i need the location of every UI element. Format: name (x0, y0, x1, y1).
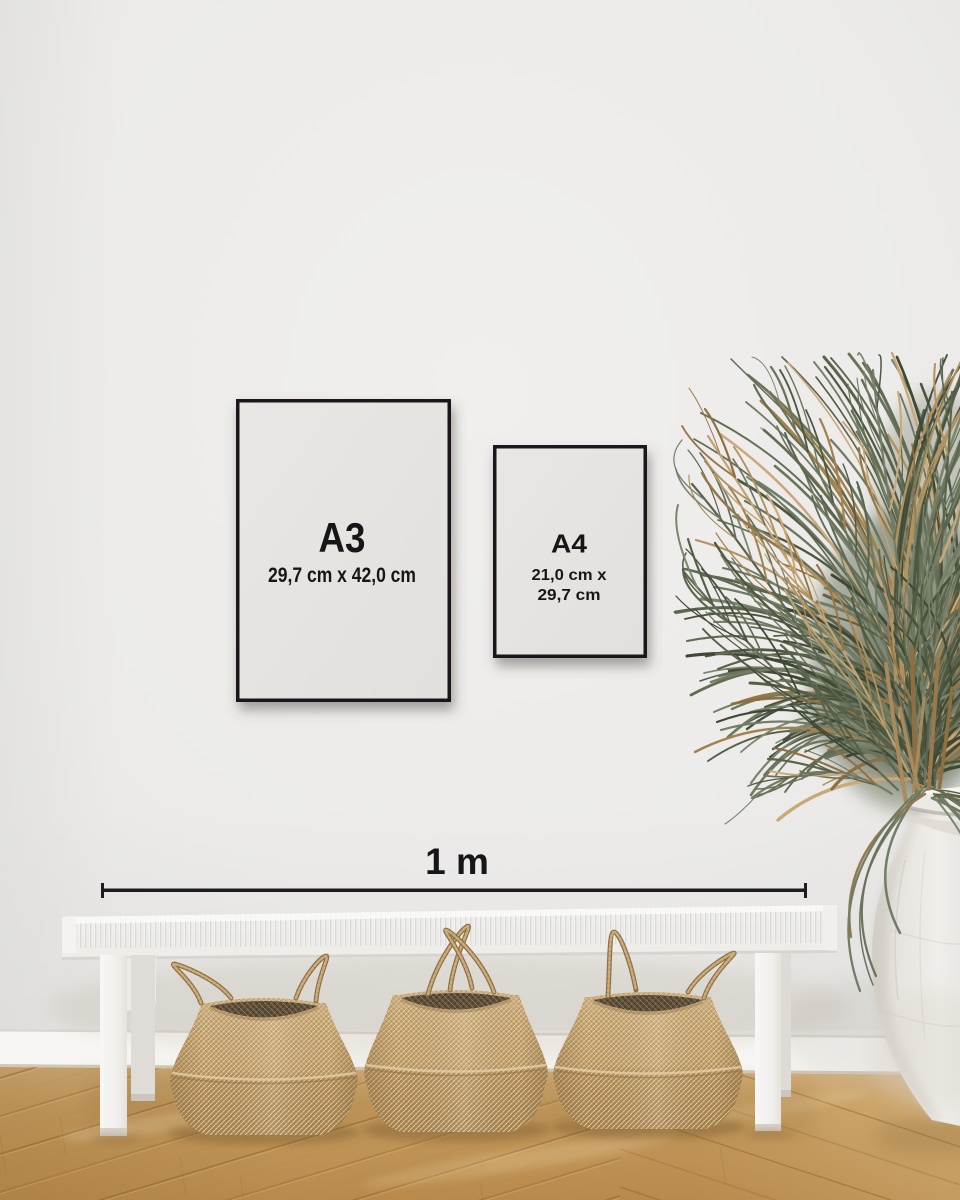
svg-text:1 m: 1 m (425, 841, 489, 882)
svg-text:29,7 cm: 29,7 cm (538, 587, 601, 604)
svg-text:21,0 cm x: 21,0 cm x (532, 567, 607, 584)
svg-text:A4: A4 (551, 529, 588, 559)
svg-text:A3: A3 (319, 514, 366, 561)
svg-text:29,7 cm x 42,0 cm: 29,7 cm x 42,0 cm (268, 564, 416, 587)
